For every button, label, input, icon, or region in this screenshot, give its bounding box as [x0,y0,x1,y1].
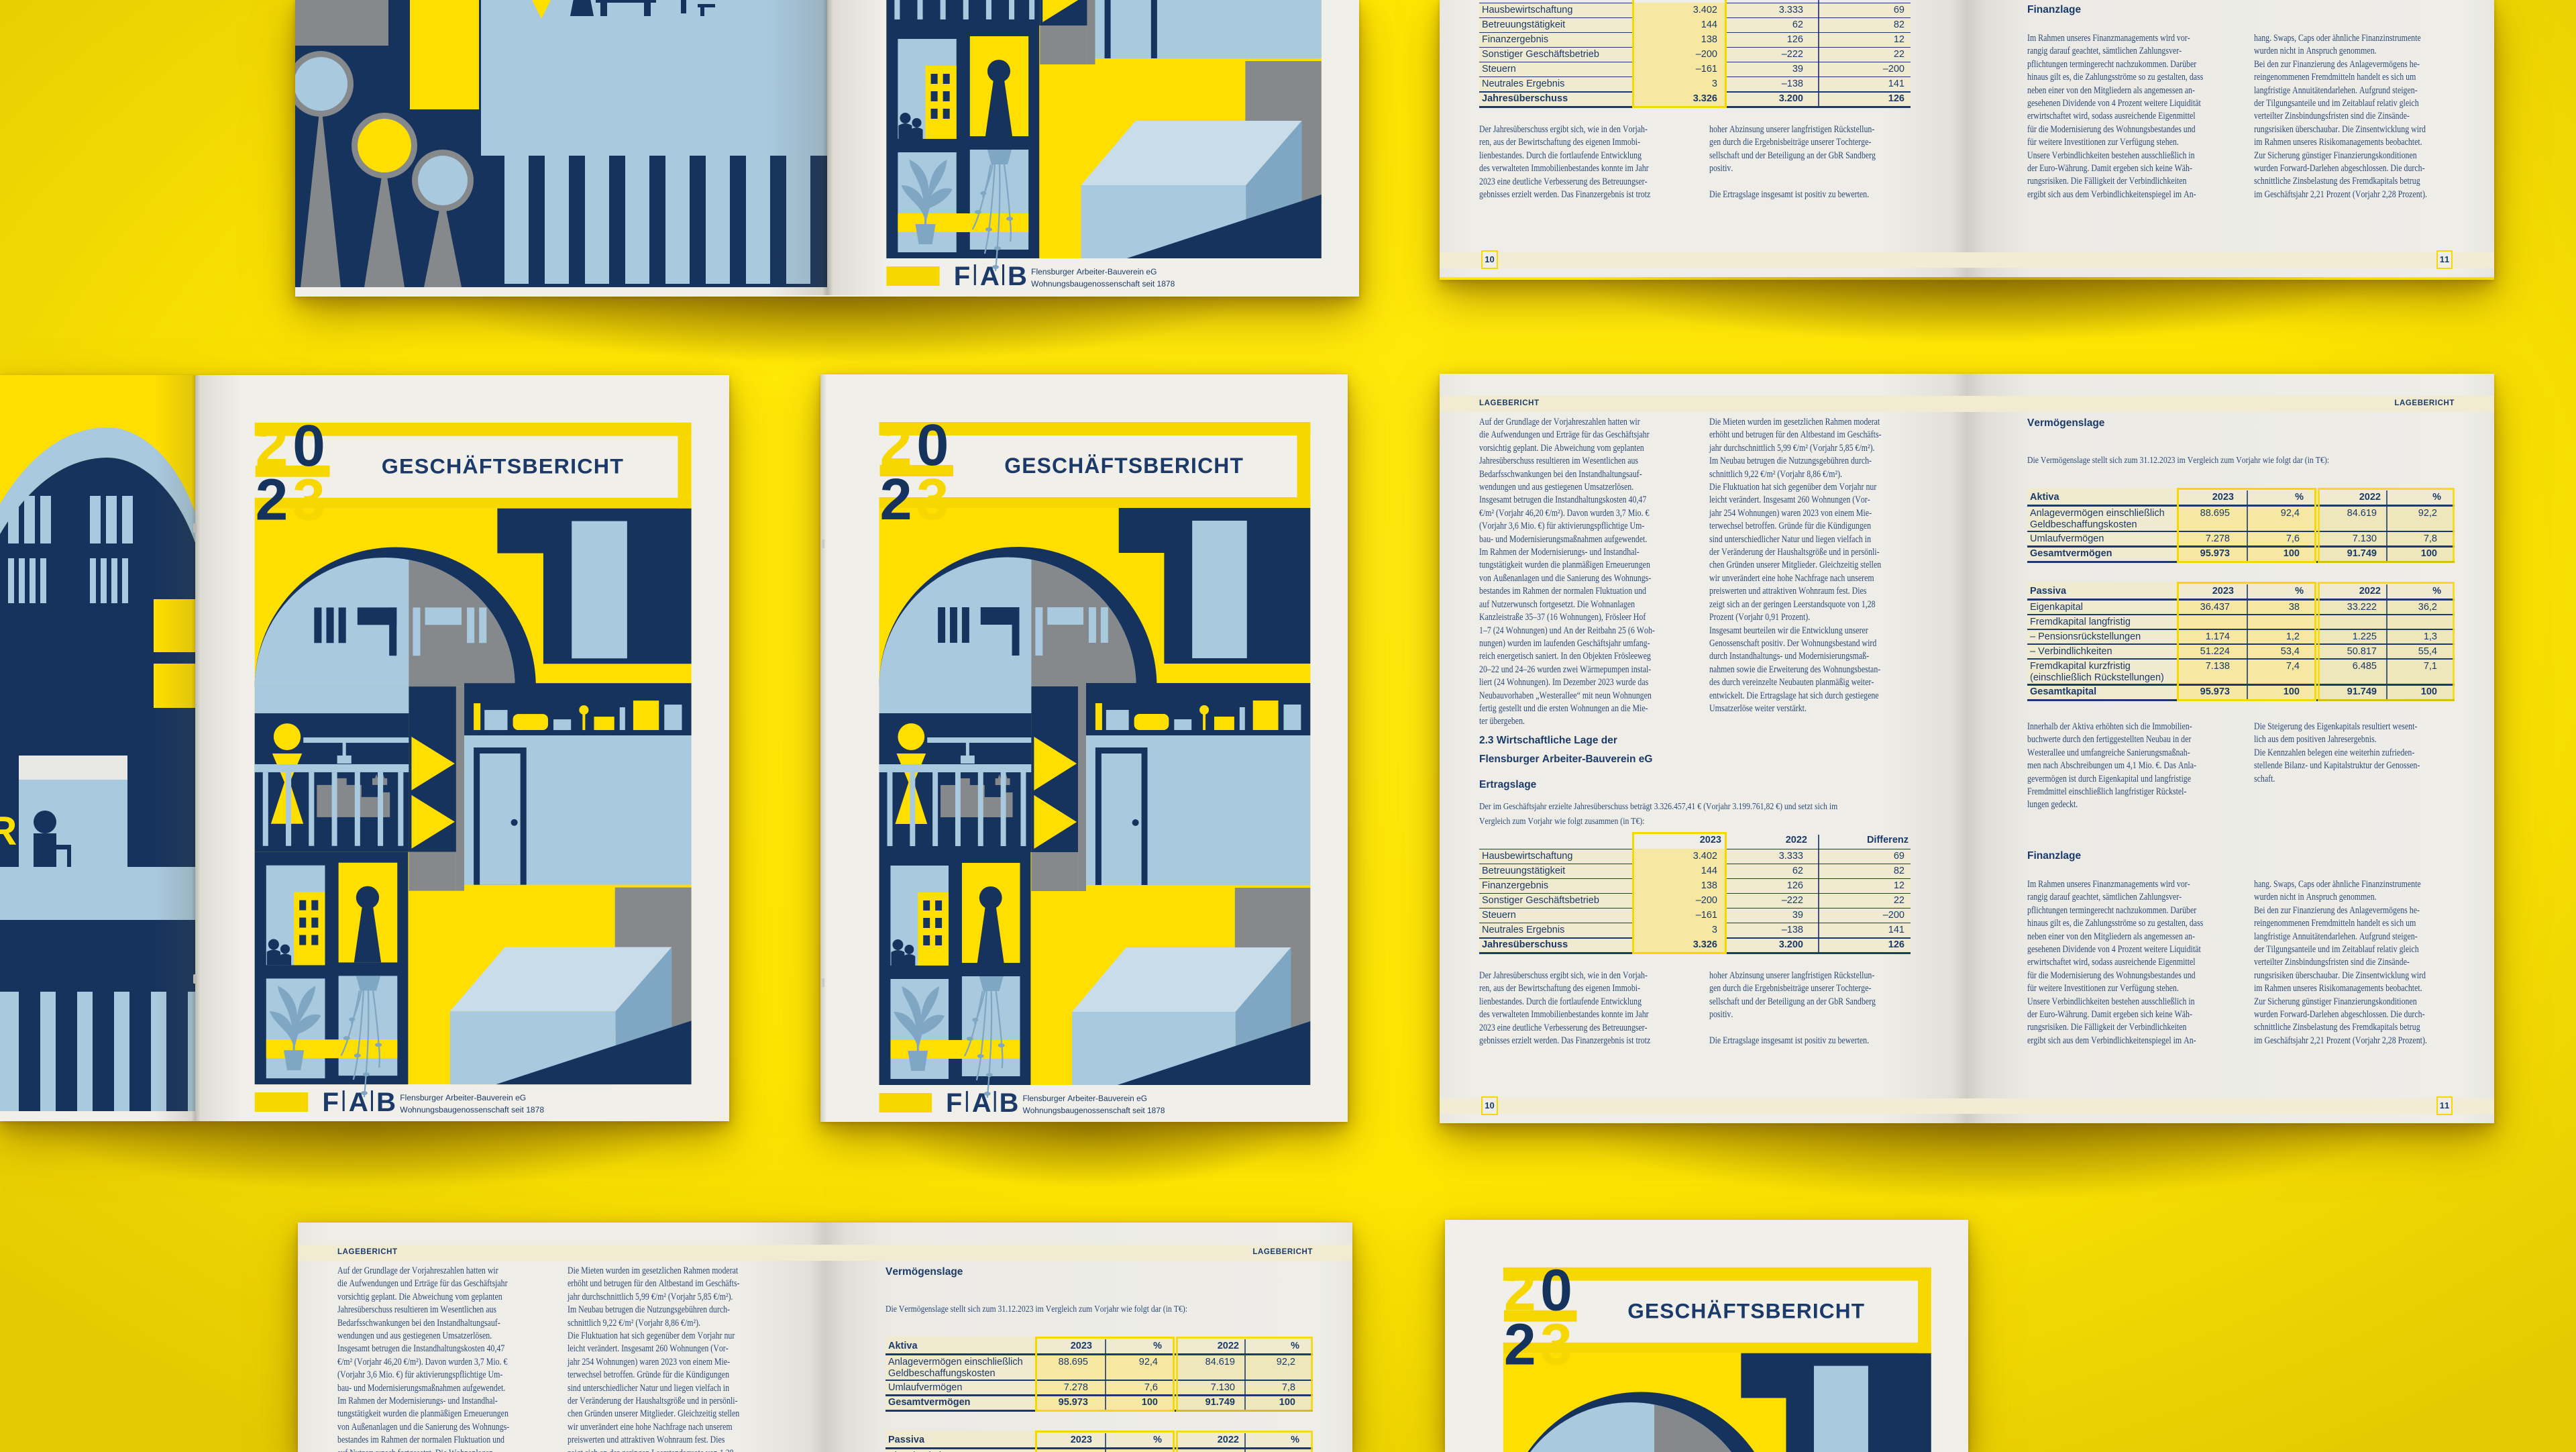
svg-text:GESCHÄFTSBERICHT: GESCHÄFTSBERICHT [1627,1299,1865,1323]
svg-text:3: 3 [292,468,325,533]
svg-text:F: F [322,1088,339,1117]
svg-text:3: 3 [1540,1312,1572,1378]
svg-text:2: 2 [1504,1312,1536,1378]
svg-text:2: 2 [880,467,912,532]
svg-text:A: A [980,262,1000,291]
svg-text:F: F [954,262,971,291]
svg-text:Wohnungsbaugenossenschaft seit: Wohnungsbaugenossenschaft seit 1878 [1022,1106,1165,1115]
svg-text:F: F [946,1088,962,1118]
svg-text:A: A [349,1088,368,1117]
svg-text:Wohnungsbaugenossenschaft seit: Wohnungsbaugenossenschaft seit 1878 [400,1105,544,1114]
svg-text:Flensburger Arbeiter-Bauverein: Flensburger Arbeiter-Bauverein eG [400,1093,526,1102]
svg-text:R: R [0,809,17,853]
svg-text:B: B [1000,1088,1019,1118]
svg-text:B: B [376,1088,396,1117]
svg-text:GESCHÄFTSBERICHT: GESCHÄFTSBERICHT [382,454,624,478]
svg-text:3: 3 [916,467,949,532]
svg-text:2: 2 [256,468,288,533]
svg-text:GESCHÄFTSBERICHT: GESCHÄFTSBERICHT [1004,454,1244,478]
svg-text:Flensburger Arbeiter-Bauverein: Flensburger Arbeiter-Bauverein eG [1031,267,1157,276]
svg-text:Flensburger Arbeiter-Bauverein: Flensburger Arbeiter-Bauverein eG [1022,1094,1147,1103]
svg-text:A: A [972,1088,991,1118]
svg-text:Wohnungsbaugenossenschaft seit: Wohnungsbaugenossenschaft seit 1878 [1031,279,1175,289]
svg-text:B: B [1008,262,1027,291]
